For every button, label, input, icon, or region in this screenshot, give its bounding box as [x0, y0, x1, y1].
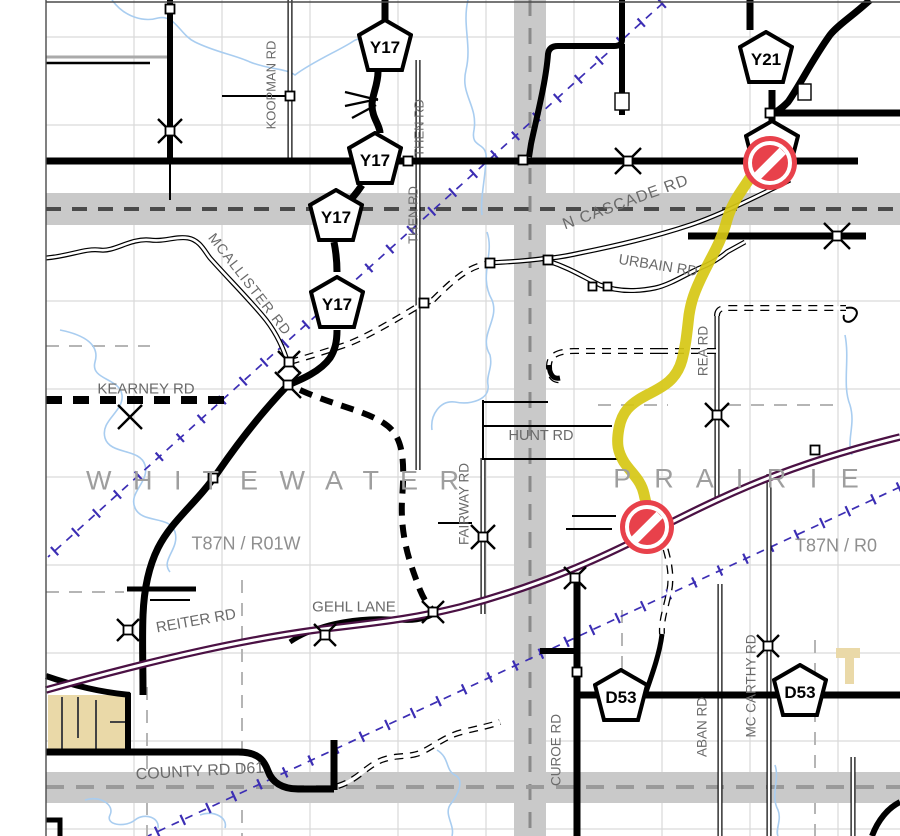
urban-area-polygons: [48, 648, 860, 755]
township-label-prairie: P R A I R I E: [613, 464, 867, 495]
road-label-gehl: GEHL LANE: [312, 599, 396, 616]
road-label-rea: REA RD: [696, 326, 711, 376]
shield-label: Y17: [370, 38, 400, 58]
shield-label: D53: [605, 688, 636, 708]
road-label-then: THEN RD: [406, 186, 421, 244]
road-label-koopman: KOOPMAN RD: [264, 41, 279, 130]
route-shield-y17: Y17: [357, 18, 413, 72]
route-shield-y17: Y17: [308, 188, 364, 242]
route-shield-d53: D53: [593, 668, 649, 722]
road-label-hunt: HUNT RD: [509, 428, 574, 444]
road-label-curoe: CUROE RD: [549, 714, 564, 786]
road-label-mccarthy: MC CARTHY RD: [744, 634, 759, 737]
route-shield-d53: D53: [772, 663, 828, 717]
township-range-label: T87N / R01W: [191, 534, 300, 555]
road-label-then: THEN RD: [412, 99, 427, 157]
no-entry-icon[interactable]: [743, 136, 797, 190]
shield-label: Y21: [751, 50, 781, 70]
shield-label: D53: [784, 683, 815, 703]
sheet-margin: [0, 0, 45, 836]
route-shield-y17: Y17: [347, 131, 403, 185]
route-shield-y17: Y17: [309, 275, 365, 329]
county-road-map[interactable]: Y17 Y17 Y17 Y17 Y21 Y21 D53 D53 KOOPMAN …: [0, 0, 900, 836]
road-label-aban: ABAN RD: [695, 697, 710, 757]
shield-label: Y17: [321, 208, 351, 228]
shield-label: Y17: [322, 295, 352, 315]
route-shield-y21: Y21: [738, 30, 794, 84]
road-label-kearney: KEARNEY RD: [97, 381, 194, 398]
shield-label: Y17: [360, 151, 390, 171]
no-entry-icon[interactable]: [620, 500, 674, 554]
township-label-whitewater: W H I T E W A T E R: [86, 466, 466, 497]
township-range-label: T87N / R0: [795, 536, 877, 557]
